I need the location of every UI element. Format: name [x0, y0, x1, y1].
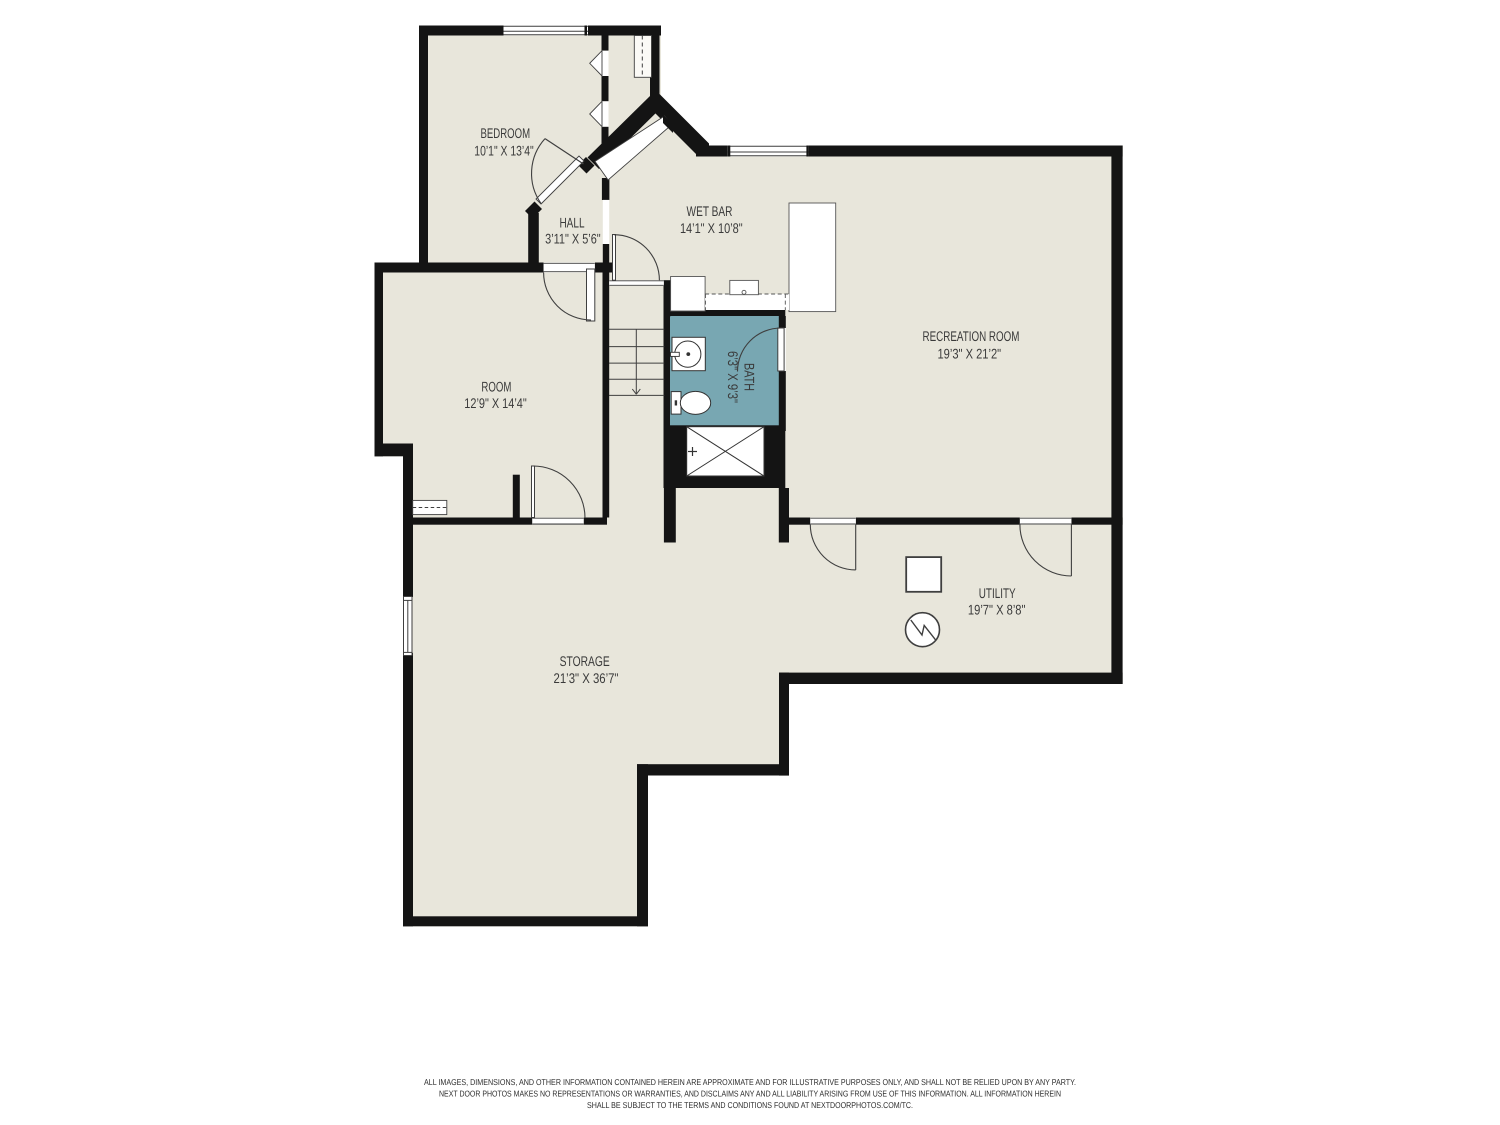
svg-text:19’7" X 8’8": 19’7" X 8’8"	[968, 601, 1026, 617]
svg-text:14’1" X 10’8": 14’1" X 10’8"	[680, 220, 743, 236]
svg-text:BEDROOM: BEDROOM	[481, 125, 531, 141]
svg-text:WET BAR: WET BAR	[687, 203, 733, 219]
svg-text:ROOM: ROOM	[481, 378, 511, 394]
svg-text:3’11" X 5’6": 3’11" X 5’6"	[545, 231, 601, 247]
svg-text:RECREATION ROOM: RECREATION ROOM	[923, 328, 1020, 344]
svg-text:SHALL BE SUBJECT TO THE TERMS: SHALL BE SUBJECT TO THE TERMS AND CONDIT…	[587, 1100, 913, 1110]
svg-text:ALL IMAGES, DIMENSIONS, AND OT: ALL IMAGES, DIMENSIONS, AND OTHER INFORM…	[424, 1077, 1076, 1087]
svg-text:6’3" X 9’3": 6’3" X 9’3"	[725, 351, 741, 403]
svg-text:BATH: BATH	[742, 363, 758, 391]
svg-text:NEXT DOOR PHOTOS MAKES NO REPR: NEXT DOOR PHOTOS MAKES NO REPRESENTATION…	[439, 1089, 1061, 1099]
svg-text:HALL: HALL	[559, 215, 584, 231]
svg-text:UTILITY: UTILITY	[979, 585, 1016, 601]
svg-text:19’3" X 21’2": 19’3" X 21’2"	[937, 346, 1001, 362]
svg-text:21’3" X 36’7": 21’3" X 36’7"	[554, 670, 619, 686]
svg-text:10’1" X 13’4": 10’1" X 13’4"	[474, 142, 533, 158]
svg-text:STORAGE: STORAGE	[560, 653, 610, 669]
svg-text:12’9" X 14’4": 12’9" X 14’4"	[464, 395, 526, 411]
